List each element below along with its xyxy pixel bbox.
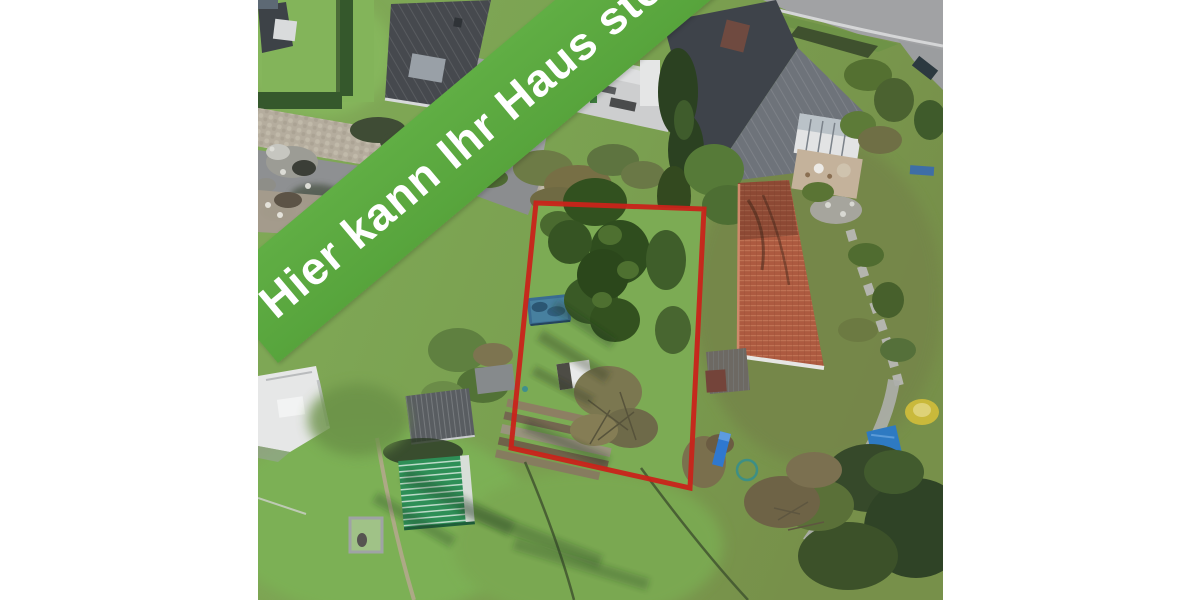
real-estate-listing-image: Hier kann Ihr Haus stehen	[0, 0, 1200, 600]
house-facade-topleft	[273, 19, 297, 42]
pond	[292, 160, 316, 176]
garden-frame	[350, 518, 382, 552]
hedge-row-vertical	[340, 0, 353, 96]
small-shed-below-barn	[705, 348, 750, 394]
small-gray-shed	[475, 364, 516, 394]
white-wall	[640, 60, 660, 106]
aerial-photo: Hier kann Ihr Haus stehen	[258, 0, 943, 600]
hedge-row-horizontal	[258, 92, 342, 109]
corrugated-shed	[405, 388, 474, 443]
watering-can	[522, 386, 528, 392]
blue-bench	[910, 165, 935, 176]
